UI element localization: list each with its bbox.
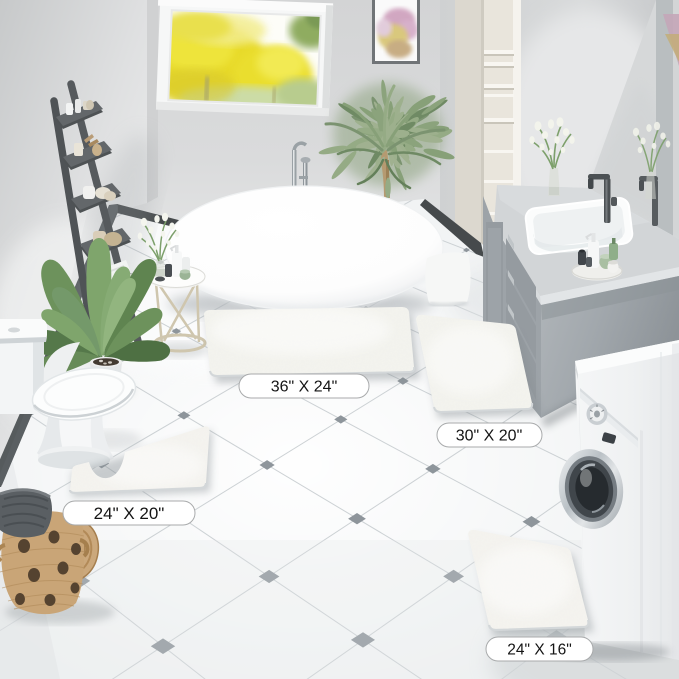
svg-text:36" X 24": 36" X 24": [271, 379, 338, 396]
svg-text:30" X 20": 30" X 20": [456, 428, 523, 445]
svg-text:24" X 20": 24" X 20": [94, 504, 165, 523]
svg-text:24" X 16": 24" X 16": [507, 642, 571, 659]
